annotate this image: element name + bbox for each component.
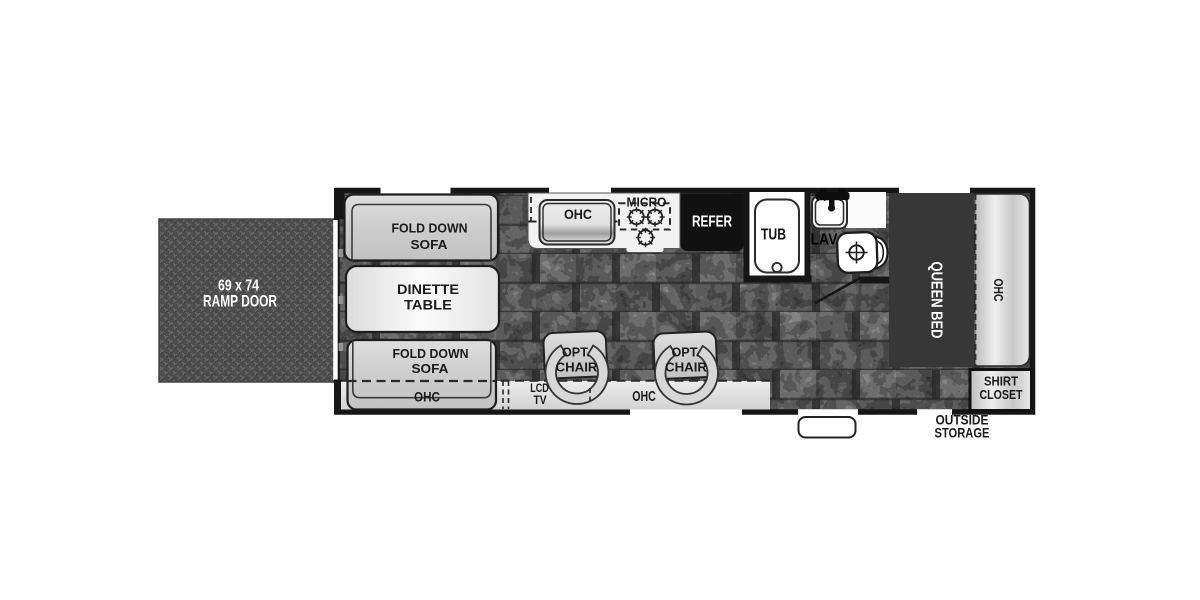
svg-text:SHIRT: SHIRT (984, 375, 1018, 389)
svg-text:CHAIR: CHAIR (665, 360, 708, 375)
svg-text:RAMP DOOR: RAMP DOOR (203, 293, 277, 311)
svg-text:REFER: REFER (692, 214, 732, 231)
svg-text:CLOSET: CLOSET (980, 388, 1023, 402)
svg-text:OHC: OHC (991, 279, 1005, 302)
svg-text:QUEEN BED: QUEEN BED (928, 262, 945, 339)
svg-text:FOLD DOWN: FOLD DOWN (393, 346, 469, 361)
svg-text:DINETTE: DINETTE (397, 282, 459, 297)
svg-text:STORAGE: STORAGE (935, 425, 990, 441)
svg-text:TV: TV (534, 395, 547, 407)
svg-text:OHC: OHC (564, 206, 592, 222)
svg-text:TABLE: TABLE (404, 298, 452, 313)
svg-text:OPT.: OPT. (562, 345, 590, 360)
svg-text:SOFA: SOFA (412, 361, 450, 376)
svg-text:OPT.: OPT. (672, 345, 700, 360)
svg-text:FOLD DOWN: FOLD DOWN (392, 221, 468, 236)
svg-text:OHC: OHC (632, 389, 656, 405)
svg-text:MICRO: MICRO (627, 195, 667, 210)
svg-text:CHAIR: CHAIR (556, 360, 599, 375)
svg-text:LCD: LCD (530, 383, 549, 395)
svg-text:SOFA: SOFA (411, 237, 449, 252)
svg-text:TUB: TUB (761, 227, 786, 244)
svg-text:LAV: LAV (811, 232, 839, 249)
svg-text:OHC: OHC (414, 390, 440, 405)
